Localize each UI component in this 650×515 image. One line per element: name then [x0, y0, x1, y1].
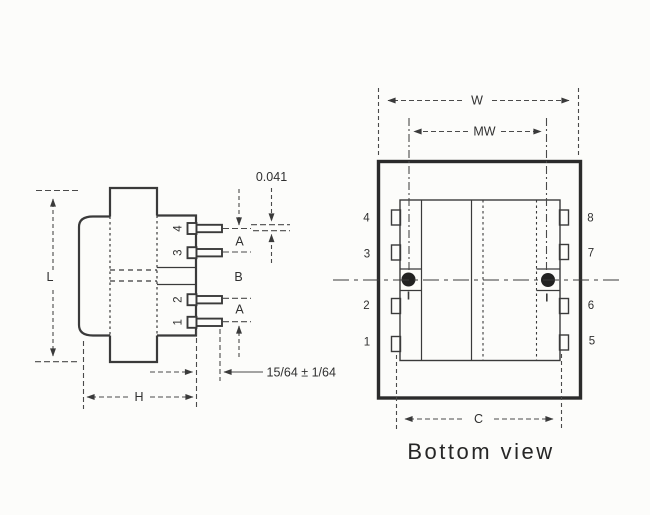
bottom-pin-4-label: 4: [363, 213, 370, 225]
bottom-tab-2: [392, 299, 401, 314]
dim-L-label: L: [47, 270, 54, 284]
bottom-tab-7: [560, 245, 569, 260]
bottom-tab-1: [392, 337, 401, 352]
bottom-tab-8: [560, 210, 569, 225]
transformer-dimension-drawing: L H A B A 0.041 15/64 ± 1/64 4 3 2 1: [0, 0, 650, 515]
dim-B-label: B: [234, 270, 242, 284]
side-pin-2-label: 2: [173, 296, 185, 302]
side-flange-top: [110, 188, 157, 217]
bottom-pin-6-label: 6: [588, 300, 594, 312]
drawing-svg: L H A B A 0.041 15/64 ± 1/64 4 3 2 1: [0, 0, 650, 515]
bottom-tab-6: [560, 299, 569, 314]
dim-H-label: H: [134, 390, 143, 404]
bottom-pin-1-label: 1: [364, 337, 370, 349]
bottom-pin-3-label: 3: [364, 248, 370, 260]
bottom-pin-2-label: 2: [363, 300, 369, 312]
bottom-tab-4: [392, 210, 401, 225]
mw-extension-lines: [409, 118, 547, 272]
dim-A-top-label: A: [235, 235, 244, 249]
side-pin-2: [197, 296, 223, 303]
side-view-labels: L H A B A 0.041 15/64 ± 1/64 4 3 2 1: [47, 170, 336, 404]
bottom-view-caption: Bottom view: [407, 439, 554, 464]
side-pin-1-base: [188, 317, 197, 328]
side-pin-3-base: [188, 247, 197, 258]
side-flange-bottom: [110, 336, 157, 363]
side-body: [79, 217, 110, 336]
dim-pin-length-label: 15/64 ± 1/64: [267, 366, 336, 380]
dim-C-label: C: [474, 412, 483, 426]
bottom-tab-5: [560, 335, 569, 350]
side-flange-hidden-edges: [110, 216, 157, 336]
bottom-pin-8-label: 8: [587, 213, 593, 225]
side-pin-2-base: [188, 294, 197, 305]
dim-W-label: W: [471, 94, 483, 108]
side-view: [79, 188, 222, 362]
dim-thickness-label: 0.041: [256, 170, 287, 184]
dim-MW-label: MW: [473, 125, 495, 139]
side-pin-4: [197, 225, 223, 232]
thickness-ticks: [251, 225, 290, 231]
side-slot-lines: [157, 268, 196, 285]
bottom-pin-5-label: 5: [589, 336, 595, 348]
side-pin-3: [197, 249, 223, 256]
l-extension-ticks: [35, 191, 80, 362]
bottom-index-ticks: [409, 292, 547, 302]
side-pins: [188, 223, 223, 328]
side-slot-hidden: [110, 270, 157, 281]
bottom-view: [333, 162, 622, 399]
dim-A-bottom-label: A: [235, 303, 244, 317]
side-pin-1-label: 1: [173, 319, 185, 325]
side-pin-3-label: 3: [173, 249, 185, 255]
bottom-tab-3: [392, 245, 401, 260]
side-pin-1: [197, 319, 223, 326]
bottom-left-tabs: [392, 210, 401, 352]
bottom-pin-7-label: 7: [588, 247, 594, 259]
side-pin-4-base: [188, 223, 197, 234]
side-view-dimensions: [35, 188, 290, 409]
bottom-view-dimensions: [379, 88, 579, 429]
side-pin-4-label: 4: [173, 225, 185, 232]
